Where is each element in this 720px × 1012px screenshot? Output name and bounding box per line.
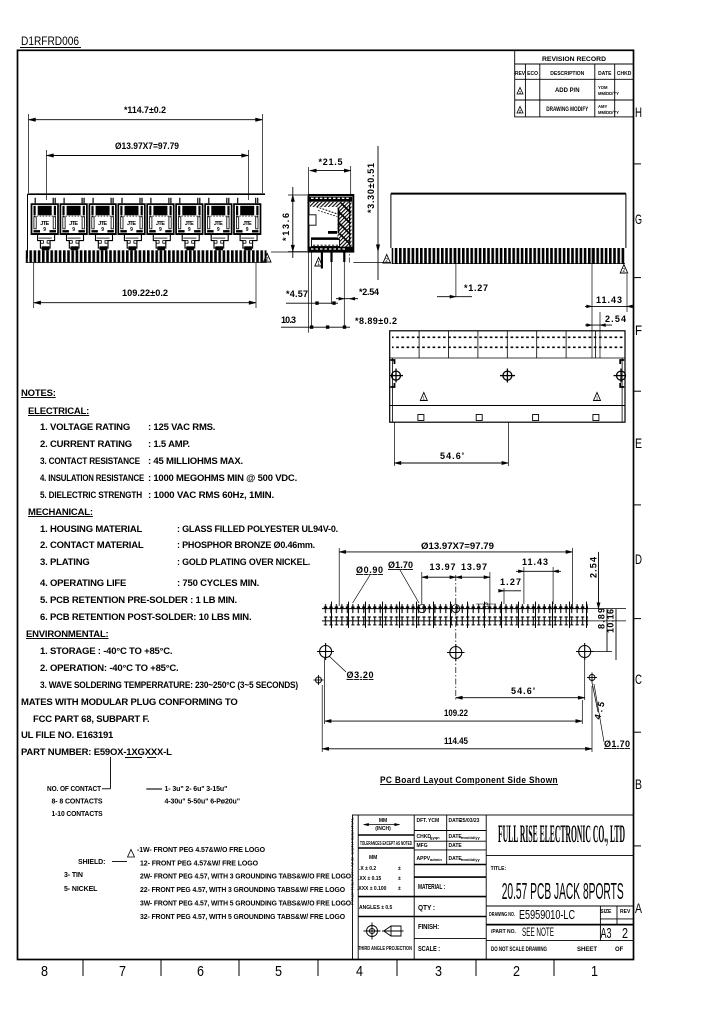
svg-text:5- NICKEL: 5- NICKEL [64, 886, 98, 893]
svg-text:/PART NO.: /PART NO. [491, 929, 517, 935]
svg-text:MECHANICAL:: MECHANICAL: [28, 507, 93, 518]
svg-text:: 1000 MEGOHMS MIN @ 500 VDC.: : 1000 MEGOHMS MIN @ 500 VDC. [148, 473, 297, 484]
svg-text:F: F [635, 322, 642, 338]
svg-text:11.43: 11.43 [522, 557, 548, 567]
svg-text:2. OPERATION: -40°C TO +85°C.: 2. OPERATION: -40°C TO +85°C. [40, 663, 178, 674]
svg-text:MM: MM [369, 855, 377, 861]
svg-text:H: H [635, 104, 642, 120]
svg-text:12- FRONT PEG 4.57&W/ FRE LOGO: 12- FRONT PEG 4.57&W/ FRE LOGO [140, 861, 259, 868]
svg-text:Ø3.20: Ø3.20 [347, 670, 374, 680]
svg-text:SHEET: SHEET [577, 947, 597, 953]
svg-text:*114.7±0.2: *114.7±0.2 [124, 105, 166, 115]
svg-text:1. HOUSING MATERIAL: 1. HOUSING MATERIAL [40, 524, 143, 535]
svg-text:FINISH:: FINISH: [418, 924, 439, 931]
svg-text:: 125 VAC RMS.: : 125 VAC RMS. [148, 422, 215, 433]
svg-text:: 45 MILLIOHMS MAX.: : 45 MILLIOHMS MAX. [148, 456, 243, 467]
svg-text:REVISION RECORD: REVISION RECORD [542, 57, 607, 63]
svg-text:DFT.: DFT. [417, 818, 428, 824]
svg-text:±: ± [398, 866, 401, 872]
svg-text:REV: REV [515, 71, 526, 77]
svg-text:*4.57: *4.57 [286, 289, 308, 299]
svg-text:ADD P/N: ADD P/N [555, 88, 580, 94]
svg-text:UL FILE NO. E163191: UL FILE NO. E163191 [21, 730, 114, 741]
svg-text:SIZE: SIZE [600, 909, 612, 915]
svg-text:TOLERANCES EXCEPT AS NOTED: TOLERANCES EXCEPT AS NOTED [360, 841, 412, 847]
svg-text:gyqn: gyqn [430, 835, 440, 840]
svg-text:PROPRIETARY AND CONFIDENTIAL: PROPRIETARY AND CONFIDENTIAL [351, 817, 355, 905]
svg-text:: PHOSPHOR BRONZE Ø0.46mm.: : PHOSPHOR BRONZE Ø0.46mm. [177, 540, 315, 551]
svg-text:2: 2 [513, 963, 520, 980]
svg-text:-1W- FRONT PEG 4.57&W/O FRE LO: -1W- FRONT PEG 4.57&W/O FRE LOGO [137, 847, 266, 854]
svg-text:54.6': 54.6' [511, 686, 535, 696]
svg-text:PC Board Layout Component Side: PC Board Layout Component Side Shown [380, 775, 558, 786]
svg-text:32- FRONT PEG 4.57, WITH 5 GRO: 32- FRONT PEG 4.57, WITH 5 GROUNDING TAB… [140, 914, 346, 921]
svg-text:*2.54: *2.54 [359, 287, 379, 297]
svg-text:MM: MM [379, 818, 387, 824]
svg-text:ANGLES ± 0.5: ANGLES ± 0.5 [359, 905, 393, 911]
svg-text:4. OPERATING LIFE: 4. OPERATING LIFE [40, 578, 126, 589]
svg-text:ELECTRICAL:: ELECTRICAL: [28, 406, 89, 417]
svg-text:REV: REV [620, 909, 631, 915]
svg-text:5. PCB RETENTION PRE-SOLDER :: 5. PCB RETENTION PRE-SOLDER : 1 LB MIN. [40, 595, 237, 606]
svg-text:8- 8 CONTACTS: 8- 8 CONTACTS [52, 799, 103, 806]
svg-text:DATE: DATE [449, 843, 463, 849]
svg-text:±: ± [398, 876, 401, 882]
svg-text:25/03/23: 25/03/23 [460, 818, 480, 824]
svg-text:20.57 PCB JACK 8PORTS: 20.57 PCB JACK 8PORTS [502, 878, 624, 904]
svg-text:DO NOT SCALE DRAWING: DO NOT SCALE DRAWING [491, 947, 547, 953]
svg-text:11.43: 11.43 [596, 295, 622, 305]
svg-text:Ø1.70: Ø1.70 [604, 739, 630, 749]
svg-text:3: 3 [435, 963, 442, 980]
svg-text:3. PLATING: 3. PLATING [40, 557, 90, 568]
svg-text:YOM: YOM [598, 85, 608, 90]
svg-text:SEE NOTE: SEE NOTE [522, 925, 554, 939]
svg-text:2W- FRONT PEG 4.57, WITH 3 GRO: 2W- FRONT PEG 4.57, WITH 3 GROUNDING TAB… [140, 874, 352, 881]
svg-text:NOTES:: NOTES: [21, 388, 56, 399]
svg-text:Ø13.97X7=97.79: Ø13.97X7=97.79 [115, 141, 179, 151]
svg-text:NO. OF CONTACT: NO. OF CONTACT [47, 786, 102, 793]
svg-text:2: 2 [622, 925, 628, 942]
svg-text:1. STORAGE : -40°C TO +85°C.: 1. STORAGE : -40°C TO +85°C. [40, 646, 172, 657]
svg-text:1-10 CONTACTS: 1-10 CONTACTS [52, 811, 103, 818]
svg-text:SHIELD:: SHIELD: [78, 859, 105, 866]
svg-text:.XX ± 0.15: .XX ± 0.15 [358, 876, 382, 882]
svg-text:MM/DD/YY: MM/DD/YY [598, 110, 619, 115]
svg-text:E5959010-LC: E5959010-LC [519, 907, 575, 922]
svg-text:MATERIAL :: MATERIAL : [418, 884, 445, 891]
svg-text:QTY :: QTY : [418, 905, 435, 912]
svg-text:Ø1.70: Ø1.70 [388, 560, 413, 570]
svg-text:*3.30±0.51: *3.30±0.51 [366, 163, 376, 213]
svg-text:: 1.5 AMP.: : 1.5 AMP. [148, 439, 190, 450]
svg-text:1.27: 1.27 [500, 577, 521, 587]
svg-text:D1RFRD006: D1RFRD006 [21, 36, 79, 48]
svg-text:4-30u" 5-50u" 6-Pø20u": 4-30u" 5-50u" 6-Pø20u" [165, 799, 240, 806]
svg-text:mm/dd/yy: mm/dd/yy [461, 857, 480, 862]
svg-text:*8.89±0.2: *8.89±0.2 [355, 316, 397, 326]
svg-text:THIRD ANGLE PROJECTION: THIRD ANGLE PROJECTION [358, 946, 412, 952]
svg-text:3. WAVE SOLDERING TEMPERRATURE: 3. WAVE SOLDERING TEMPERRATURE: 230~250°… [40, 680, 298, 691]
svg-text:.XXX ± 0.100: .XXX ± 0.100 [357, 886, 387, 892]
svg-text:114.45: 114.45 [444, 736, 468, 746]
svg-text:1- 3u" 2- 6u" 3-15u": 1- 3u" 2- 6u" 3-15u" [165, 786, 228, 793]
svg-text:22- FRONT PEG 4.57, WITH 3 GRO: 22- FRONT PEG 4.57, WITH 3 GROUNDING TAB… [140, 887, 346, 894]
svg-text:SCALE :: SCALE : [418, 946, 440, 953]
svg-text:MM/DD/YY: MM/DD/YY [598, 91, 619, 96]
svg-text:3- TIN: 3- TIN [64, 872, 83, 879]
svg-text:2.54: 2.54 [589, 557, 599, 578]
svg-text:: 750 CYCLES MIN.: : 750 CYCLES MIN. [177, 578, 259, 589]
svg-text:4: 4 [356, 963, 363, 980]
svg-text:.X ± 0.2: .X ± 0.2 [359, 866, 376, 872]
svg-text:8: 8 [41, 963, 48, 980]
svg-text:C: C [635, 671, 642, 687]
svg-text:(INCH): (INCH) [375, 826, 391, 832]
svg-text:YCM: YCM [428, 818, 439, 824]
svg-text:FULL RISE ELECTRONIC CO., LTD: FULL RISE ELECTRONIC CO., LTD [498, 821, 625, 848]
svg-text:FCC PART 68, SUBPART F.: FCC PART 68, SUBPART F. [33, 714, 149, 725]
svg-text:A3: A3 [601, 925, 612, 942]
svg-text:*1.27: *1.27 [464, 283, 488, 293]
svg-text:DRAWING NO.: DRAWING NO. [489, 912, 515, 918]
svg-text:: GOLD PLATING OVER NICKEL.: : GOLD PLATING OVER NICKEL. [177, 557, 310, 568]
svg-text:CHKD: CHKD [617, 71, 632, 77]
svg-text:PART NUMBER: E59OX-1XGXXX-L: PART NUMBER: E59OX-1XGXXX-L [21, 747, 172, 758]
svg-text:G: G [635, 211, 642, 227]
svg-text:MFG: MFG [417, 843, 428, 849]
svg-text:4. INSULATION RESISTANCE: 4. INSULATION RESISTANCE [40, 473, 144, 484]
svg-text:OF: OF [615, 947, 624, 953]
svg-text:1. VOLTAGE RATING: 1. VOLTAGE RATING [40, 422, 130, 433]
svg-text:: GLASS FILLED POLYESTER UL94V: : GLASS FILLED POLYESTER UL94V-0. [177, 524, 338, 535]
svg-text:B: B [635, 776, 642, 792]
svg-text:3. CONTACT RESISTANCE: 3. CONTACT RESISTANCE [40, 456, 140, 467]
svg-text:DESCRIPTION: DESCRIPTION [550, 71, 584, 77]
svg-text:: 1000 VAC RMS 60Hz, 1MIN.: : 1000 VAC RMS 60Hz, 1MIN. [148, 490, 274, 501]
svg-text:ENVIRONMENTAL:: ENVIRONMENTAL: [26, 629, 109, 640]
svg-text:AMY: AMY [598, 104, 608, 109]
svg-text:2: 2 [623, 268, 626, 274]
svg-text:3W- FRONT PEG 4.57, WITH 5 GRO: 3W- FRONT PEG 4.57, WITH 5 GROUNDING TAB… [140, 901, 352, 908]
svg-text:13.97: 13.97 [461, 562, 487, 572]
svg-text:ECO: ECO [527, 71, 538, 77]
svg-text:5: 5 [275, 963, 282, 980]
svg-text:109.22: 109.22 [444, 708, 468, 718]
svg-text:2. CURRENT RATING: 2. CURRENT RATING [40, 439, 132, 450]
svg-text:6: 6 [197, 963, 204, 980]
svg-text:E: E [635, 435, 642, 451]
svg-text:10.3: 10.3 [281, 315, 296, 325]
svg-text:MATES WITH MODULAR PLUG CONFOR: MATES WITH MODULAR PLUG CONFORMING TO [21, 697, 238, 708]
svg-text:DATE: DATE [598, 71, 612, 77]
svg-text:10.16: 10.16 [606, 609, 616, 633]
svg-text:54.6': 54.6' [440, 451, 464, 461]
svg-text:2.54: 2.54 [605, 314, 626, 324]
svg-text:2: 2 [385, 258, 388, 264]
svg-text:*21.5: *21.5 [319, 157, 343, 167]
svg-text:2: 2 [266, 257, 269, 263]
svg-text:1: 1 [317, 261, 320, 267]
svg-text:Ø0.90: Ø0.90 [356, 565, 383, 575]
svg-text:A: A [635, 900, 642, 916]
svg-text:admin: admin [430, 857, 442, 862]
svg-text:5. DIELECTRIC STRENGTH: 5. DIELECTRIC STRENGTH [40, 490, 142, 501]
svg-text:DRAWING MODIFY: DRAWING MODIFY [546, 107, 588, 113]
svg-text:D: D [635, 551, 642, 567]
svg-text:7: 7 [119, 963, 126, 980]
svg-text:1: 1 [591, 963, 598, 980]
svg-text:109.22±0.2: 109.22±0.2 [122, 288, 168, 298]
svg-text:±: ± [398, 886, 401, 892]
svg-text:13.97: 13.97 [430, 562, 456, 572]
svg-text:6. PCB RETENTION POST-SOLDER:: 6. PCB RETENTION POST-SOLDER: 10 LBS MIN… [40, 612, 251, 623]
svg-text:mm/dd/yy: mm/dd/yy [461, 835, 480, 840]
svg-text:2. CONTACT MATERIAL: 2. CONTACT MATERIAL [40, 540, 144, 551]
svg-text:TITLE:: TITLE: [491, 866, 507, 872]
svg-text:Ø13.97X7=97.79: Ø13.97X7=97.79 [421, 541, 494, 551]
svg-text:APPV: APPV [417, 856, 431, 862]
